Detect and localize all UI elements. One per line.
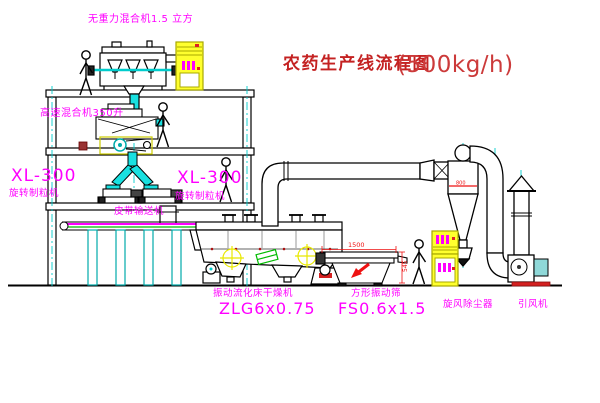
control-cabinet-lower xyxy=(432,231,458,286)
label-granulator-right-name: 旋转制粒机 xyxy=(175,190,225,202)
label-granulator-left-model: XL-300 xyxy=(11,166,76,186)
label-sieve-model: FS0.6x1.5 xyxy=(338,299,426,318)
label-high-speed-mixer: 高速混合机350升 xyxy=(40,106,124,119)
induced-draft-fan xyxy=(508,255,550,286)
cad-canvas: 农药生产线流程图 (500kg/h) 无重力混合机1.5 立方 高速混合机350… xyxy=(0,0,600,403)
dimension-sieve-height: 545 xyxy=(402,260,409,272)
gravity-free-mixer xyxy=(88,41,178,110)
label-cyclone: 旋风除尘器 xyxy=(443,298,493,310)
dimension-cyclone-diameter: 800 xyxy=(456,181,466,187)
dimension-sieve-length: 1500 xyxy=(348,241,365,249)
belt-conveyor xyxy=(60,222,204,285)
diagram-capacity: (500kg/h) xyxy=(397,52,514,78)
exhaust-stack xyxy=(507,176,536,255)
label-granulator-right-model: XL-300 xyxy=(177,168,242,188)
label-sieve-name: 方形振动筛 xyxy=(351,287,401,299)
y-split-duct xyxy=(106,152,158,189)
label-dryer-name: 振动流化床干燥机 xyxy=(213,287,293,299)
exhaust-duct xyxy=(262,160,450,226)
label-belt-conveyor: 皮带输送机 xyxy=(114,205,164,217)
granulator-left xyxy=(98,189,142,203)
label-dryer-model: ZLG6x0.75 xyxy=(219,299,316,318)
worker-figure-ground xyxy=(413,240,426,284)
label-gravity-free-mixer: 无重力混合机1.5 立方 xyxy=(88,12,193,25)
label-granulator-left-name: 旋转制粒机 xyxy=(9,187,59,199)
label-fan: 引风机 xyxy=(518,298,548,310)
control-cabinet-upper xyxy=(176,42,203,90)
